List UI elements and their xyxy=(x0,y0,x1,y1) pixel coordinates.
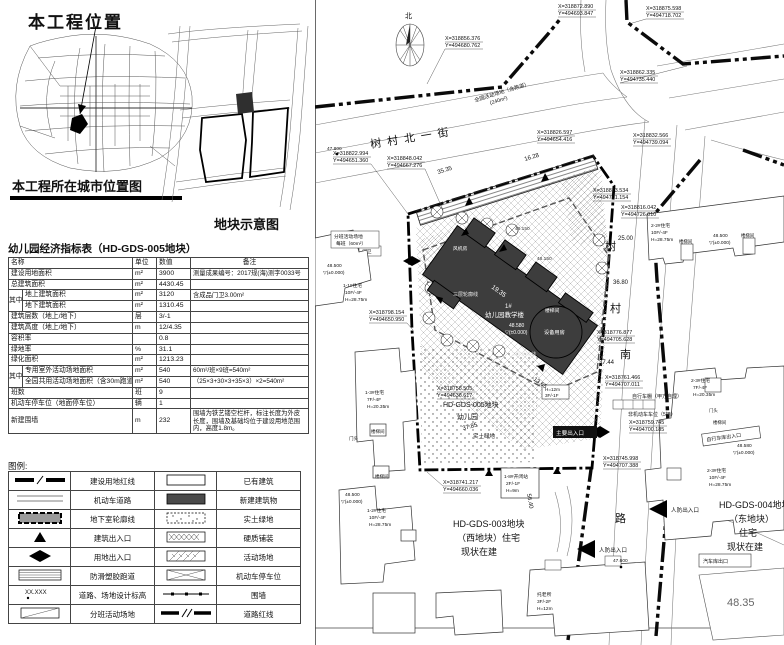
kindergarten-plot-marker xyxy=(236,92,254,114)
svg-text:Y=494700.185: Y=494700.185 xyxy=(629,427,664,433)
svg-text:2-3#住宅: 2-3#住宅 xyxy=(691,377,710,384)
svg-text:主要出入口: 主要出入口 xyxy=(556,429,584,437)
svg-text:现状在建: 现状在建 xyxy=(461,546,497,557)
svg-text:住宅: 住宅 xyxy=(739,527,757,538)
elderly-care-building: 托老所 3F/-2F H=12m xyxy=(527,556,649,636)
building-elev: 48.580 xyxy=(509,323,525,329)
legend-label: 围墙 xyxy=(217,586,301,605)
svg-text:1-1#住宅: 1-1#住宅 xyxy=(343,282,362,289)
equipment-room-label: 设备用房 xyxy=(544,328,565,336)
svg-text:楼梯间: 楼梯间 xyxy=(741,232,754,239)
site-plan: 北 xyxy=(315,0,784,645)
bike-shed: 自行车棚（甲方自理） 非机动车车位（5辆） xyxy=(613,393,682,418)
north-arrow: 北 xyxy=(396,12,424,66)
drawing-sheet: 本工程位置 本工程所在城市位置图 xyxy=(0,0,784,645)
svg-text:X=318776.877: X=318776.877 xyxy=(597,330,632,336)
svg-text:37.44: 37.44 xyxy=(599,360,615,366)
plot-schematic xyxy=(150,22,315,212)
svg-text:1-3#住宅: 1-3#住宅 xyxy=(365,389,384,396)
svg-text:X=318741.217: X=318741.217 xyxy=(443,480,478,486)
svg-text:现状在建: 现状在建 xyxy=(727,541,763,552)
svg-text:10F/-4F: 10F/-4F xyxy=(709,475,726,481)
svg-text:Y=494707.388: Y=494707.388 xyxy=(603,463,638,469)
legend-label: 防滑塑胶跑道 xyxy=(71,567,155,586)
city-map-caption: 本工程所在城市位置图 xyxy=(12,176,142,195)
svg-text:56.40: 56.40 xyxy=(525,493,534,509)
svg-text:X=318759.745: X=318759.745 xyxy=(629,420,664,426)
svg-text:H=28.75m: H=28.75m xyxy=(651,237,673,243)
svg-text:X=318872.890: X=318872.890 xyxy=(558,4,593,10)
svg-text:1-8#开闭站: 1-8#开闭站 xyxy=(504,473,528,480)
svg-text:Y=494650.950: Y=494650.950 xyxy=(369,317,404,323)
legend-label: 新建建筑物 xyxy=(217,491,301,510)
svg-text:Y=494654.416: Y=494654.416 xyxy=(537,137,572,143)
outline-3f-label-2: 三层轮廓线 xyxy=(511,351,536,358)
svg-text:H=28.75m: H=28.75m xyxy=(709,482,731,488)
legend-label: 建设用地红线 xyxy=(71,472,155,491)
svg-text:路: 路 xyxy=(615,512,626,525)
svg-text:HD-GDS-004地块: HD-GDS-004地块 xyxy=(719,499,784,510)
svg-text:H=28.75m: H=28.75m xyxy=(345,297,367,303)
coord-callout: X=318872.890Y=494693.847 xyxy=(558,4,596,17)
svg-text:（东地块）: （东地块） xyxy=(729,513,774,524)
fan-room-label: 风机房 xyxy=(453,245,468,252)
main-entrance-label: 主要出入口 xyxy=(553,426,597,438)
svg-text:人防出入口: 人防出入口 xyxy=(671,506,699,514)
svg-text:X=318758.505: X=318758.505 xyxy=(437,386,472,392)
legend-symbol-road xyxy=(13,491,67,507)
svg-text:人防出入口: 人防出入口 xyxy=(599,546,627,554)
svg-text:门头: 门头 xyxy=(709,407,718,414)
svg-text:3F/-1F: 3F/-1F xyxy=(545,393,559,398)
legend-label: 机动车道路 xyxy=(71,491,155,510)
svg-text:X=318856.376: X=318856.376 xyxy=(445,36,480,42)
corner-lot: 48.35 汽车库出口 xyxy=(699,554,784,640)
legend-symbol-hard-paving xyxy=(159,529,213,545)
eco-table-title: 幼儿园经济指标表（HD-GDS-005地块） xyxy=(8,241,196,256)
svg-text:10F/-4F: 10F/-4F xyxy=(369,515,386,521)
svg-text:楼梯间: 楼梯间 xyxy=(679,238,692,245)
svg-text:X=318761.466: X=318761.466 xyxy=(605,375,640,381)
svg-text:XX.XXX: XX.XXX xyxy=(25,590,47,596)
svg-text:非机动车车位（5辆）: 非机动车车位（5辆） xyxy=(628,411,676,418)
legend-symbol-site-entrance xyxy=(13,548,67,564)
street-north-label: 树村北一街 xyxy=(369,124,455,151)
svg-text:48.150: 48.150 xyxy=(537,256,552,262)
coord-callout: X=318745.998Y=494707.388 xyxy=(603,456,641,469)
coord-callout: X=318826.597Y=494654.416 xyxy=(537,130,575,143)
svg-text:Y=494651.360: Y=494651.360 xyxy=(333,158,368,164)
svg-text:10F/-4F: 10F/-4F xyxy=(651,230,668,236)
coord-callout: X=318875.598Y=494718.702 xyxy=(629,6,684,24)
svg-text:X=318862.335: X=318862.335 xyxy=(620,70,655,76)
coord-callout: X=318856.376Y=494680.762 xyxy=(427,36,483,84)
svg-text:分班活动场地: 分班活动场地 xyxy=(334,233,363,240)
legend-label: 道路、场地设计标高 xyxy=(71,586,155,605)
svg-text:48.500: 48.500 xyxy=(327,263,342,269)
svg-text:H=28.75m: H=28.75m xyxy=(369,522,391,528)
svg-text:Y=494636.617: Y=494636.617 xyxy=(437,393,472,399)
svg-text:Y=494705.628: Y=494705.628 xyxy=(597,337,632,343)
coord-callout: X=318832.566Y=494739.094 xyxy=(633,133,671,146)
legend-symbol-fence xyxy=(159,586,213,602)
svg-text:7F/-4F: 7F/-4F xyxy=(693,385,707,391)
legend-label: 活动场地 xyxy=(217,548,301,567)
coord-callout: X=318848.042Y=494667.276 xyxy=(387,156,443,210)
garage-exit-label: 汽车库出口 xyxy=(703,558,728,565)
svg-text:HD-GDS-005地块: HD-GDS-005地块 xyxy=(443,400,499,409)
svg-text:门头: 门头 xyxy=(349,435,358,442)
svg-text:Y=494701.154: Y=494701.154 xyxy=(593,195,628,201)
svg-text:H=12m: H=12m xyxy=(537,606,553,612)
svg-text:2F/-1F: 2F/-1F xyxy=(506,481,520,487)
coord-callout: X=318741.217Y=494660.036 xyxy=(427,472,481,493)
coord-callout: X=318758.505Y=494636.617 xyxy=(437,386,475,399)
svg-text:▽(±0.000): ▽(±0.000) xyxy=(709,240,731,246)
svg-text:自行车棚（甲方自理）: 自行车棚（甲方自理） xyxy=(632,393,682,400)
corner-elevation: 48.35 xyxy=(727,597,755,609)
legend-label: 道路红线 xyxy=(217,605,301,624)
coord-callout: X=318761.466Y=494707.011 xyxy=(605,375,643,388)
svg-text:实土绿地: 实土绿地 xyxy=(473,432,496,440)
svg-text:48.150: 48.150 xyxy=(515,226,530,232)
legend-symbol-rubber-track xyxy=(13,567,67,583)
legend-label: 分班活动场地 xyxy=(71,605,155,624)
svg-text:HD-GDS-003地块: HD-GDS-003地块 xyxy=(453,518,525,529)
svg-text:托老所: 托老所 xyxy=(537,591,552,598)
coord-callout: X=318759.745Y=494700.185 xyxy=(629,420,667,433)
coord-callout: X=318862.335Y=494735.440 xyxy=(620,66,687,83)
svg-text:48.500: 48.500 xyxy=(345,492,360,498)
legend-label: 机动车停车位 xyxy=(217,567,301,586)
svg-text:H=20.35m: H=20.35m xyxy=(367,404,389,410)
svg-text:（西地块）住宅: （西地块）住宅 xyxy=(457,532,520,543)
svg-text:X=318745.998: X=318745.998 xyxy=(603,456,638,462)
svg-text:H=12m: H=12m xyxy=(545,387,560,392)
svg-text:Y=494680.762: Y=494680.762 xyxy=(445,43,480,49)
legend-symbol-existing-building xyxy=(159,472,213,488)
svg-text:16.28: 16.28 xyxy=(524,153,541,163)
legend-label: 建筑出入口 xyxy=(71,529,155,548)
legend-label: 硬质铺装 xyxy=(217,529,301,548)
building-elev-base: ▽(±0.000) xyxy=(505,330,528,336)
svg-text:树: 树 xyxy=(605,239,616,253)
legend-label: 用地出入口 xyxy=(71,548,155,567)
svg-text:1-2#住宅: 1-2#住宅 xyxy=(367,507,386,514)
svg-text:H=20.35m: H=20.35m xyxy=(693,392,715,398)
svg-text:Y=494739.094: Y=494739.094 xyxy=(633,140,668,146)
svg-text:Y=494726.010: Y=494726.010 xyxy=(621,212,656,218)
legend-symbol-class-activity xyxy=(13,605,67,621)
svg-text:楼梯间: 楼梯间 xyxy=(375,473,389,480)
svg-text:X=318798.154: X=318798.154 xyxy=(369,310,404,316)
svg-text:Y=494660.036: Y=494660.036 xyxy=(443,487,478,493)
svg-text:Y=494693.847: Y=494693.847 xyxy=(558,11,593,17)
legend-table: 建设用地红线 已有建筑 机动车道路 新建建筑物 地下室轮廓线 实土绿地 建筑出入… xyxy=(8,471,301,624)
stair-label: 楼梯间 xyxy=(545,307,560,314)
svg-text:楼梯间: 楼梯间 xyxy=(713,419,726,426)
economic-indicators-table: 名称单位数值备注 建设用地面积m²3900测量成果编号：2017规(海)测字00… xyxy=(8,257,309,434)
svg-text:47.600: 47.600 xyxy=(613,558,628,564)
svg-text:48.580: 48.580 xyxy=(737,443,752,449)
east-slab-building: 2-2#住宅 10F/-4F H=28.75m 48.500 ▽(±0.000)… xyxy=(647,196,784,264)
svg-text:Y=494735.440: Y=494735.440 xyxy=(620,77,655,83)
svg-text:X=318848.042: X=318848.042 xyxy=(387,156,422,162)
legend-symbol-activity-ground xyxy=(159,548,213,564)
svg-text:48.500: 48.500 xyxy=(713,233,728,239)
legend-symbol-parking-space xyxy=(159,567,213,583)
svg-text:Y=494718.702: Y=494718.702 xyxy=(646,13,681,19)
svg-text:2-3#住宅: 2-3#住宅 xyxy=(707,467,726,474)
plot-schematic-caption: 地块示意图 xyxy=(214,214,279,233)
location-arrow xyxy=(80,26,96,114)
legend-symbol-road-red-line xyxy=(159,605,213,621)
svg-text:▽(±0.000): ▽(±0.000) xyxy=(733,450,755,456)
legend-label: 地下室轮廓线 xyxy=(71,510,155,529)
building-name: 幼儿园教学楼 xyxy=(485,310,525,319)
svg-text:X=318875.598: X=318875.598 xyxy=(646,6,681,12)
svg-text:村: 村 xyxy=(610,301,621,315)
svg-text:X=318822.994: X=318822.994 xyxy=(333,151,368,157)
legend-label: 实土绿地 xyxy=(217,510,301,529)
legend-symbol-basement-outline xyxy=(13,510,67,526)
svg-text:▽(±0.000): ▽(±0.000) xyxy=(341,499,363,505)
legend-symbol-site-red-line xyxy=(13,472,67,488)
switch-station: 1-8#开闭站 2F/-1F H=9m xyxy=(501,468,539,498)
building-number: 1# xyxy=(505,304,512,310)
svg-text:H=9m: H=9m xyxy=(506,488,519,494)
legend-symbol-building-entrance xyxy=(13,529,67,545)
svg-text:每班（60m²）: 每班（60m²） xyxy=(336,240,366,247)
svg-text:3F/-2F: 3F/-2F xyxy=(537,599,551,605)
north-label: 北 xyxy=(405,12,412,20)
svg-text:X=318832.566: X=318832.566 xyxy=(633,133,668,139)
svg-text:36.80: 36.80 xyxy=(613,280,629,286)
svg-text:X=318816.042: X=318816.042 xyxy=(621,205,656,211)
outline-3f-label: 三层轮廓线 xyxy=(453,291,478,298)
svg-text:幼儿园: 幼儿园 xyxy=(457,412,478,421)
coord-callout: X=318813.534Y=494701.154 xyxy=(593,188,631,201)
svg-text:X=318813.534: X=318813.534 xyxy=(593,188,628,194)
svg-text:25.00: 25.00 xyxy=(618,236,634,242)
coord-callout: X=318798.154Y=494650.950 xyxy=(369,310,413,330)
legend-symbol-design-elevation: XX.XXX xyxy=(13,586,67,602)
svg-text:2-2#住宅: 2-2#住宅 xyxy=(651,222,670,229)
svg-text:楼梯间: 楼梯间 xyxy=(371,428,385,435)
project-site-marker xyxy=(70,114,88,134)
svg-text:35.35: 35.35 xyxy=(437,166,454,176)
svg-text:10F/-4F: 10F/-4F xyxy=(345,290,362,296)
legend-symbol-soil-green xyxy=(159,510,213,526)
legend-label: 已有建筑 xyxy=(217,472,301,491)
coord-callout: X=318816.042Y=494726.010 xyxy=(621,205,659,218)
coord-callout: X=318776.877Y=494705.628 xyxy=(597,330,635,343)
svg-text:7F/-4F: 7F/-4F xyxy=(367,397,381,403)
svg-text:Y=494707.011: Y=494707.011 xyxy=(605,382,640,388)
svg-text:Y=494667.276: Y=494667.276 xyxy=(387,163,422,169)
legend-symbol-new-building xyxy=(159,491,213,507)
svg-text:X=318826.597: X=318826.597 xyxy=(537,130,572,136)
svg-text:▽(±0.000): ▽(±0.000) xyxy=(323,270,345,276)
svg-text:南: 南 xyxy=(620,348,631,361)
